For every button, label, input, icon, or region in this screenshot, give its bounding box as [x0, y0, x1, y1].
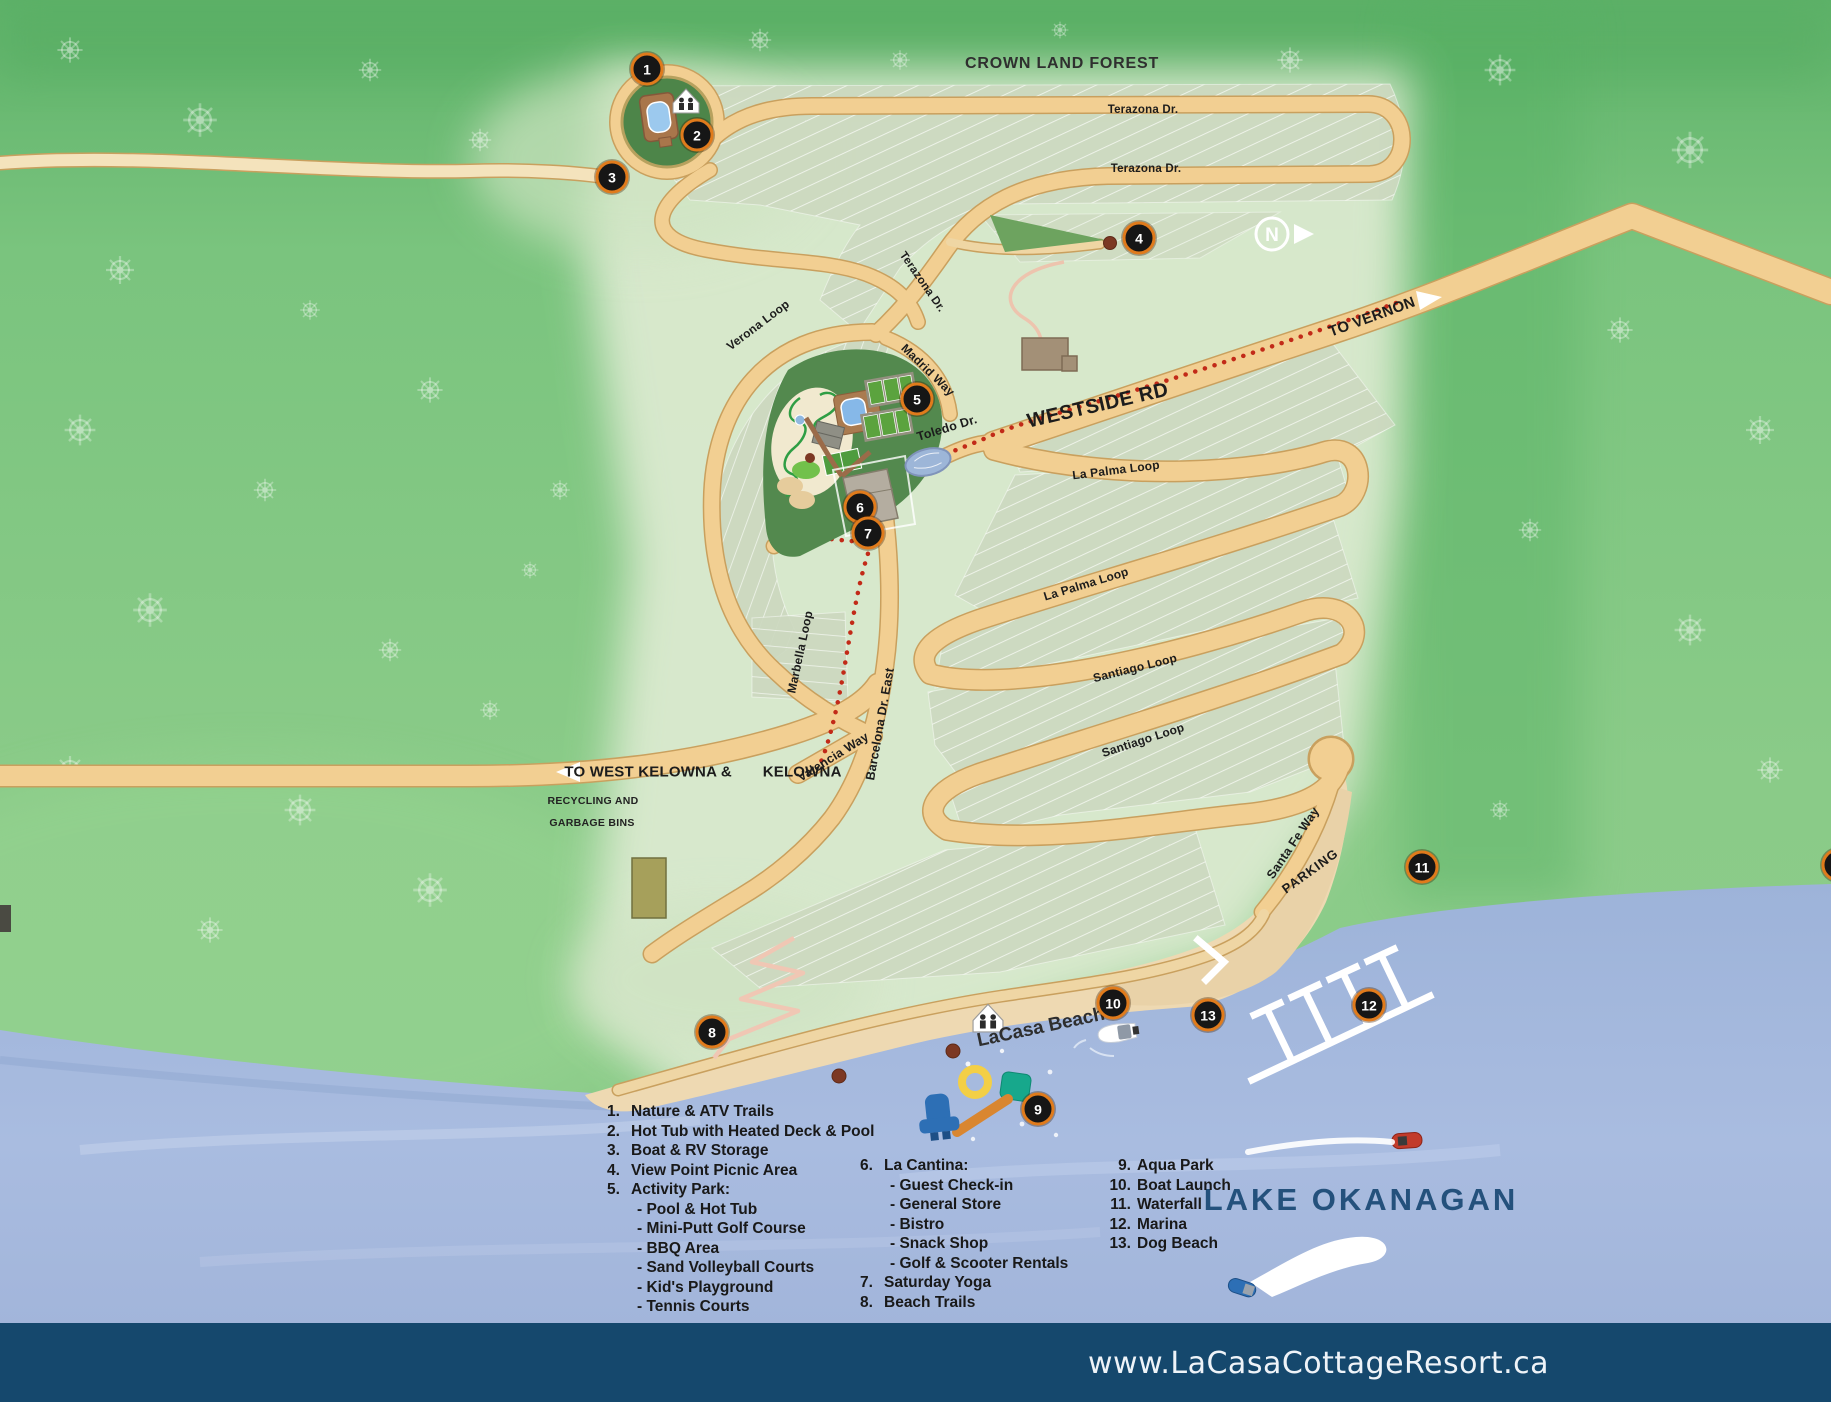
legend-item: 7.Saturday Yoga — [860, 1273, 1068, 1293]
legend-item: 4.View Point Picnic Area — [607, 1161, 874, 1181]
legend-item: 1.Nature & ATV Trails — [607, 1102, 874, 1122]
legend-subitem: - Golf & Scooter Rentals — [860, 1254, 1068, 1274]
legend-item: 6.La Cantina: — [860, 1156, 1068, 1176]
legend-item: 2.Hot Tub with Heated Deck & Pool — [607, 1122, 874, 1142]
to-kelowna-part2: KELOWNA — [763, 764, 842, 781]
map-marker-9: 9 — [1022, 1093, 1055, 1126]
legend-subitem: - Mini-Putt Golf Course — [607, 1219, 874, 1239]
recycling-label-2: GARBAGE BINS — [549, 817, 634, 829]
legend-subitem: - Sand Volleyball Courts — [607, 1258, 874, 1278]
legend-item: 9.Aqua Park — [1105, 1156, 1231, 1176]
legend-subitem: - Snack Shop — [860, 1234, 1068, 1254]
map-marker-13: 13 — [1192, 999, 1225, 1032]
footer-bar — [0, 1323, 1831, 1402]
road-label-terazona-2: Terazona Dr. — [1111, 163, 1182, 175]
storage-building — [1022, 338, 1077, 371]
map-marker-1: 1 — [631, 53, 664, 86]
legend-subitem: - Tennis Courts — [607, 1297, 874, 1317]
red-boat — [1391, 1132, 1422, 1149]
legend-subitem: - Guest Check-in — [860, 1176, 1068, 1196]
map-marker-8: 8 — [696, 1016, 729, 1049]
lake-okanagan-label: LAKE OKANAGAN — [1204, 1182, 1519, 1218]
legend-subitem: - BBQ Area — [607, 1239, 874, 1259]
compass-n: N — [1265, 225, 1279, 246]
legend-column-2: 6.La Cantina: - Guest Check-in - General… — [860, 1156, 1068, 1312]
legend-subitem: - Bistro — [860, 1215, 1068, 1235]
edge-building — [0, 905, 11, 932]
resort-map: N CROWN LAND FOREST Terazona Dr. Terazon… — [0, 0, 1831, 1402]
legend-item: 8.Beach Trails — [860, 1293, 1068, 1313]
legend-column-3: 9.Aqua Park 10.Boat Launch 11.Waterfall … — [1105, 1156, 1231, 1254]
kids-playground — [792, 461, 820, 479]
map-marker-12: 12 — [1353, 989, 1386, 1022]
map-marker-7: 7 — [852, 517, 885, 550]
website-url: www.LaCasaCottageResort.ca — [1088, 1346, 1549, 1381]
legend-item: 11.Waterfall — [1105, 1195, 1231, 1215]
map-marker-2: 2 — [681, 119, 714, 152]
storage-lot — [632, 858, 666, 918]
legend-subitem: - Kid's Playground — [607, 1278, 874, 1298]
legend-item: 10.Boat Launch — [1105, 1176, 1231, 1196]
road-label-terazona-1: Terazona Dr. — [1108, 104, 1179, 116]
crown-land-forest-label: CROWN LAND FOREST — [965, 55, 1159, 73]
map-marker-5: 5 — [901, 383, 934, 416]
legend-subitem: - General Store — [860, 1195, 1068, 1215]
legend-item: 5.Activity Park: — [607, 1180, 874, 1200]
legend-item: 13.Dog Beach — [1105, 1234, 1231, 1254]
to-kelowna-part1: TO WEST KELOWNA & — [564, 764, 732, 781]
road-label-to-kelowna: TO WEST KELOWNA & KELOWNA — [564, 764, 841, 781]
map-marker-3: 3 — [596, 161, 629, 194]
map-marker-4: 4 — [1123, 222, 1156, 255]
legend-item: 3.Boat & RV Storage — [607, 1141, 874, 1161]
recycling-label-1: RECYCLING AND — [547, 795, 638, 807]
map-marker-10: 10 — [1097, 987, 1130, 1020]
legend-column-1: 1.Nature & ATV Trails 2.Hot Tub with Hea… — [607, 1102, 874, 1317]
legend-item: 12.Marina — [1105, 1215, 1231, 1235]
legend-subitem: - Pool & Hot Tub — [607, 1200, 874, 1220]
map-marker-11: 11 — [1406, 851, 1439, 884]
